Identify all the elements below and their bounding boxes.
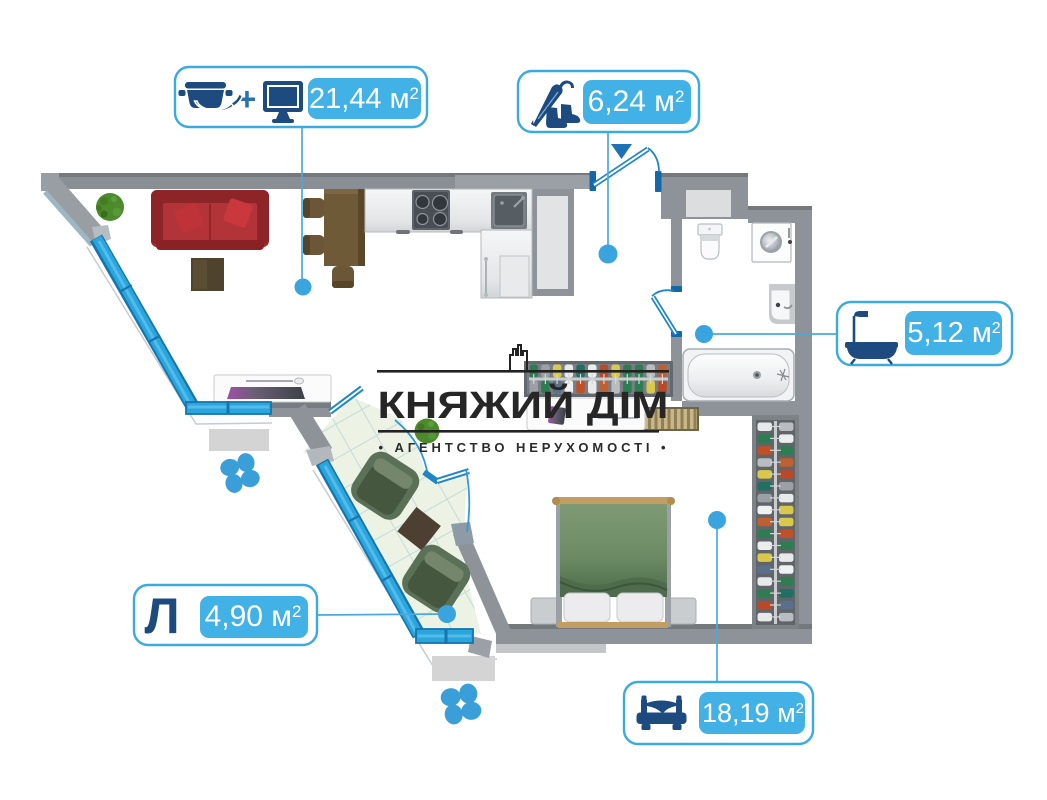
svg-text:6,24 м2: 6,24 м2 xyxy=(588,85,685,118)
svg-text:21,44 м2: 21,44 м2 xyxy=(309,83,419,115)
svg-text:Л: Л xyxy=(144,588,179,644)
svg-text:КНЯЖИЙ ДІМ: КНЯЖИЙ ДІМ xyxy=(378,382,669,427)
svg-text:18,19 м2: 18,19 м2 xyxy=(702,698,804,728)
svg-text:• АГЕНТСТВО НЕРУХОМОСТІ •: • АГЕНТСТВО НЕРУХОМОСТІ • xyxy=(379,440,666,455)
svg-text:4,90 м2: 4,90 м2 xyxy=(205,600,302,633)
svg-text:5,12 м2: 5,12 м2 xyxy=(907,317,1000,349)
